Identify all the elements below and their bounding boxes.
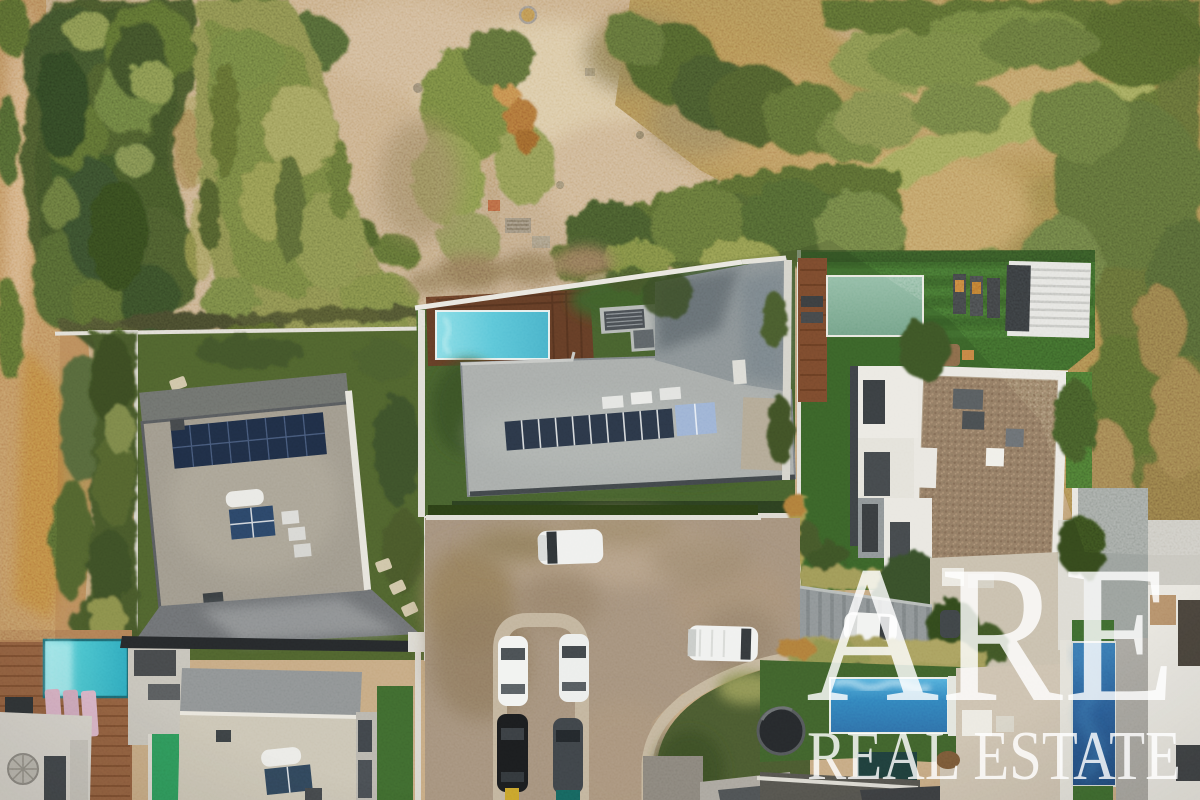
svg-text:REAL ESTATE: REAL ESTATE	[807, 718, 1181, 795]
svg-text:ARE: ARE	[806, 526, 1176, 743]
